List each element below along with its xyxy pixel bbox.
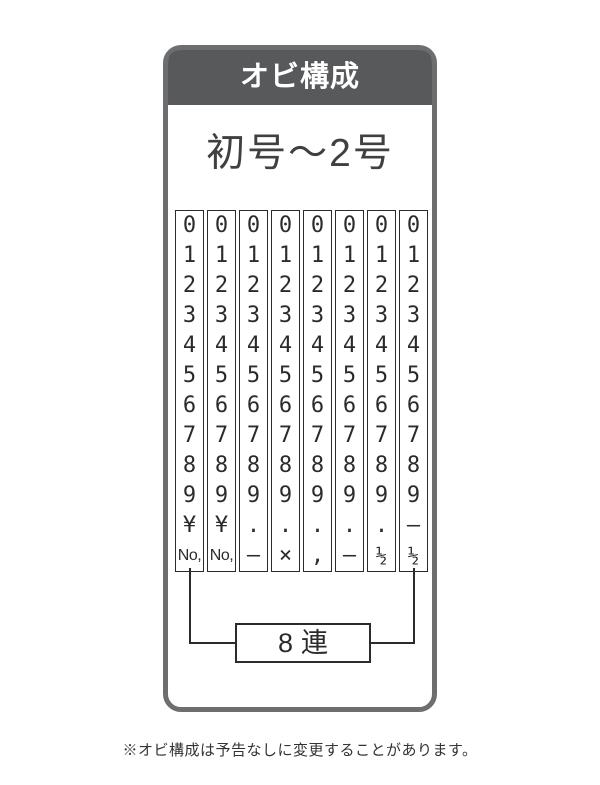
band-cell: . xyxy=(368,511,395,541)
band-cell: – xyxy=(240,541,267,571)
band-cell: 0 xyxy=(240,211,267,241)
band-cell: . xyxy=(272,511,299,541)
size-range-label: 初号〜2号 xyxy=(163,131,437,178)
band-grid: 0123456789¥No,0123456789¥No,0123456789.–… xyxy=(175,210,428,572)
band-cell: 7 xyxy=(336,421,363,451)
bracket-right-horizontal-line xyxy=(371,642,415,644)
band-cell: – xyxy=(336,541,363,571)
band-cell: 0 xyxy=(336,211,363,241)
band-column: 0123456789.– xyxy=(239,210,268,572)
footnote: ※オビ構成は予告なしに変更することがあります。 xyxy=(0,739,600,760)
band-cell: 5 xyxy=(272,361,299,391)
band-cell: 9 xyxy=(208,481,235,511)
band-cell: 9 xyxy=(336,481,363,511)
band-cell: 8 xyxy=(304,451,331,481)
band-cell: 5 xyxy=(208,361,235,391)
band-cell: . xyxy=(240,511,267,541)
band-cell: 0 xyxy=(272,211,299,241)
band-cell: 4 xyxy=(304,331,331,361)
band-cell: 6 xyxy=(272,391,299,421)
band-count-box: 8連 xyxy=(235,623,371,663)
band-cell: 6 xyxy=(368,391,395,421)
band-cell: 1 xyxy=(208,241,235,271)
band-cell: , xyxy=(304,541,331,571)
band-cell: 8 xyxy=(336,451,363,481)
band-cell: 4 xyxy=(368,331,395,361)
band-cell: 2 xyxy=(304,271,331,301)
band-cell: 5 xyxy=(304,361,331,391)
band-cell: 9 xyxy=(176,481,203,511)
panel-header: オビ構成 xyxy=(168,50,432,105)
band-cell: 1 xyxy=(176,241,203,271)
band-cell: 1 xyxy=(368,241,395,271)
page: オビ構成 初号〜2号 0123456789¥No,0123456789¥No,0… xyxy=(0,0,600,785)
band-cell: 4 xyxy=(208,331,235,361)
band-cell: 7 xyxy=(400,421,427,451)
bracket-left-vertical-line xyxy=(189,568,191,644)
band-cell: ½ xyxy=(368,541,395,571)
band-cell: 5 xyxy=(368,361,395,391)
band-column: 0123456789–½ xyxy=(399,210,428,572)
bracket-left-horizontal-line xyxy=(189,642,235,644)
band-cell: 2 xyxy=(176,271,203,301)
band-cell: 1 xyxy=(240,241,267,271)
bracket-right-vertical-line xyxy=(413,568,415,644)
band-cell: 1 xyxy=(272,241,299,271)
band-column: 0123456789.– xyxy=(335,210,364,572)
band-cell: 0 xyxy=(368,211,395,241)
band-cell: 4 xyxy=(336,331,363,361)
band-cell: 0 xyxy=(176,211,203,241)
band-cell: No, xyxy=(208,541,235,571)
band-cell: 5 xyxy=(400,361,427,391)
band-cell: 3 xyxy=(272,301,299,331)
band-cell: 3 xyxy=(304,301,331,331)
band-cell: 8 xyxy=(208,451,235,481)
band-count-label: 8連 xyxy=(270,630,336,657)
band-cell: 3 xyxy=(400,301,427,331)
band-cell: 5 xyxy=(176,361,203,391)
band-cell: 0 xyxy=(208,211,235,241)
band-cell: . xyxy=(336,511,363,541)
band-cell: 3 xyxy=(208,301,235,331)
band-cell: 1 xyxy=(400,241,427,271)
band-cell: 7 xyxy=(368,421,395,451)
band-column: 0123456789., xyxy=(303,210,332,572)
band-cell: 5 xyxy=(336,361,363,391)
band-cell: 8 xyxy=(400,451,427,481)
panel-title: オビ構成 xyxy=(240,63,360,92)
band-cell: 7 xyxy=(304,421,331,451)
band-cell: . xyxy=(304,511,331,541)
band-cell: 9 xyxy=(368,481,395,511)
band-cell: 2 xyxy=(336,271,363,301)
band-cell: 9 xyxy=(304,481,331,511)
band-cell: 2 xyxy=(208,271,235,301)
band-cell: 6 xyxy=(208,391,235,421)
band-cell: ½ xyxy=(400,541,427,571)
band-column: 0123456789¥No, xyxy=(175,210,204,572)
band-cell: 5 xyxy=(240,361,267,391)
band-cell: 8 xyxy=(176,451,203,481)
band-cell: 7 xyxy=(208,421,235,451)
band-cell: 9 xyxy=(272,481,299,511)
band-cell: 0 xyxy=(304,211,331,241)
band-cell: – xyxy=(400,511,427,541)
band-cell: 3 xyxy=(240,301,267,331)
band-cell: 2 xyxy=(400,271,427,301)
band-cell: 4 xyxy=(176,331,203,361)
band-cell: 6 xyxy=(304,391,331,421)
band-cell: 8 xyxy=(240,451,267,481)
band-cell: 0 xyxy=(400,211,427,241)
band-cell: 8 xyxy=(368,451,395,481)
band-column: 0123456789.× xyxy=(271,210,300,572)
band-cell: 6 xyxy=(336,391,363,421)
band-cell: ¥ xyxy=(176,511,203,541)
band-cell: 4 xyxy=(272,331,299,361)
band-cell: 6 xyxy=(176,391,203,421)
band-cell: 2 xyxy=(272,271,299,301)
band-cell: 2 xyxy=(240,271,267,301)
band-cell: 3 xyxy=(336,301,363,331)
band-column: 0123456789¥No, xyxy=(207,210,236,572)
band-column: 0123456789.½ xyxy=(367,210,396,572)
band-cell: 6 xyxy=(240,391,267,421)
band-cell: 2 xyxy=(368,271,395,301)
band-cell: 7 xyxy=(176,421,203,451)
band-cell: 1 xyxy=(336,241,363,271)
band-cell: 9 xyxy=(400,481,427,511)
band-cell: 6 xyxy=(400,391,427,421)
band-cell: 4 xyxy=(400,331,427,361)
band-cell: 3 xyxy=(368,301,395,331)
band-cell: 1 xyxy=(304,241,331,271)
band-cell: 8 xyxy=(272,451,299,481)
band-cell: 7 xyxy=(272,421,299,451)
band-cell: 7 xyxy=(240,421,267,451)
band-cell: 4 xyxy=(240,331,267,361)
band-cell: × xyxy=(272,541,299,571)
band-cell: 9 xyxy=(240,481,267,511)
band-cell: 3 xyxy=(176,301,203,331)
band-cell: No, xyxy=(176,541,203,571)
band-cell: ¥ xyxy=(208,511,235,541)
